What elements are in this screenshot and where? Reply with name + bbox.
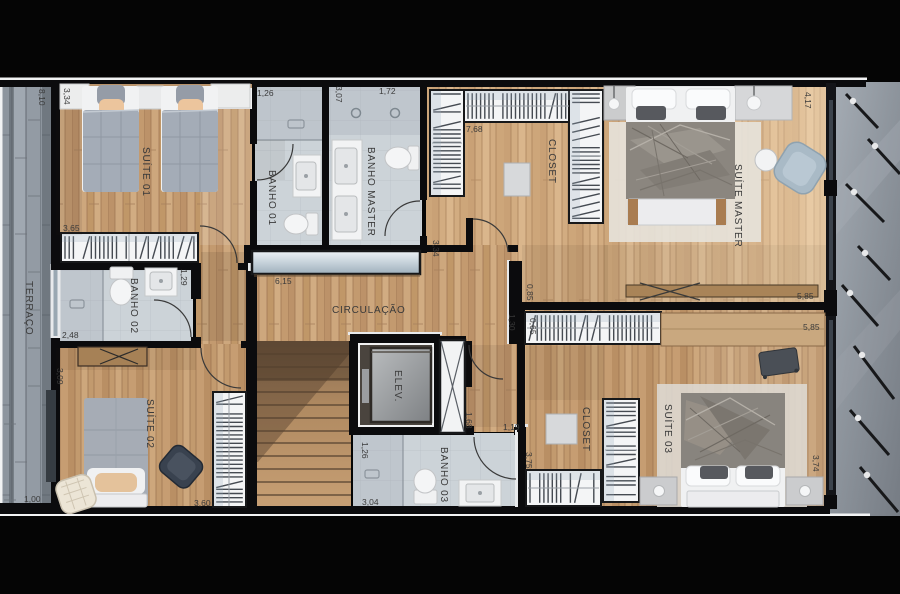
svg-text:3,34: 3,34 <box>431 240 441 257</box>
svg-text:1,26: 1,26 <box>257 88 274 98</box>
svg-text:CIRCULAÇÃO: CIRCULAÇÃO <box>332 303 406 316</box>
svg-text:7,68: 7,68 <box>466 124 483 134</box>
svg-text:1,30: 1,30 <box>507 314 517 331</box>
svg-text:1,29: 1,29 <box>179 269 189 286</box>
svg-text:8,10: 8,10 <box>37 89 47 106</box>
svg-text:4,17: 4,17 <box>803 92 813 109</box>
svg-text:3,75: 3,75 <box>524 452 534 469</box>
svg-text:SUÍTE 01: SUÍTE 01 <box>140 147 153 197</box>
svg-text:1,72: 1,72 <box>379 86 396 96</box>
svg-text:1,00: 1,00 <box>24 494 41 504</box>
svg-text:1,68: 1,68 <box>464 412 474 429</box>
svg-text:BANHO 03: BANHO 03 <box>438 447 449 503</box>
svg-text:SUÍTE 02: SUÍTE 02 <box>144 399 157 449</box>
svg-text:0,85: 0,85 <box>525 284 535 301</box>
svg-text:1,26: 1,26 <box>360 442 370 459</box>
svg-text:CLOSET: CLOSET <box>546 139 557 184</box>
svg-text:ELEV.: ELEV. <box>392 370 403 402</box>
svg-text:3,07: 3,07 <box>334 86 344 103</box>
svg-text:3,04: 3,04 <box>362 497 379 507</box>
svg-text:BANHO 02: BANHO 02 <box>128 278 139 334</box>
svg-text:2,48: 2,48 <box>62 330 79 340</box>
svg-text:TERRAÇO: TERRAÇO <box>23 281 34 336</box>
svg-text:BANHO 01: BANHO 01 <box>266 170 277 226</box>
svg-text:1,19: 1,19 <box>503 422 520 432</box>
svg-text:3,65: 3,65 <box>63 223 80 233</box>
svg-text:5,85: 5,85 <box>803 322 820 332</box>
svg-text:3,09: 3,09 <box>55 368 65 385</box>
svg-text:SUÍTE MASTER: SUÍTE MASTER <box>732 164 745 248</box>
svg-text:BANHO MASTER: BANHO MASTER <box>365 147 376 237</box>
svg-text:CLOSET: CLOSET <box>580 407 591 452</box>
svg-text:0,65: 0,65 <box>528 318 538 335</box>
svg-text:3,60: 3,60 <box>194 498 211 508</box>
svg-text:5,85: 5,85 <box>797 291 814 301</box>
svg-text:3,34: 3,34 <box>62 88 72 105</box>
svg-text:SUÍTE 03: SUÍTE 03 <box>662 404 675 454</box>
svg-text:3,74: 3,74 <box>811 455 821 472</box>
svg-text:6,15: 6,15 <box>275 276 292 286</box>
